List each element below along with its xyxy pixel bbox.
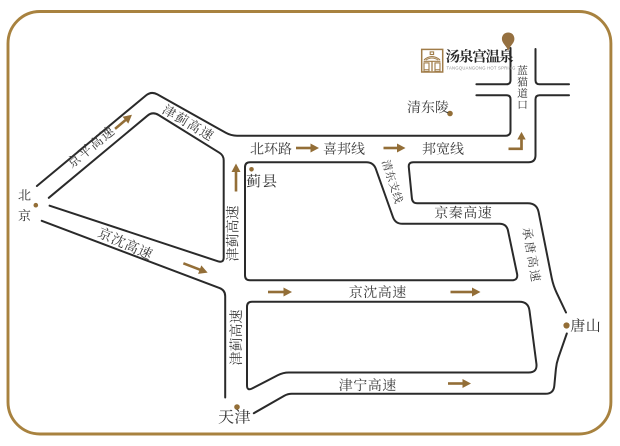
svg-text:TANGQUANGONG HOT SPRING: TANGQUANGONG HOT SPRING (447, 66, 516, 71)
